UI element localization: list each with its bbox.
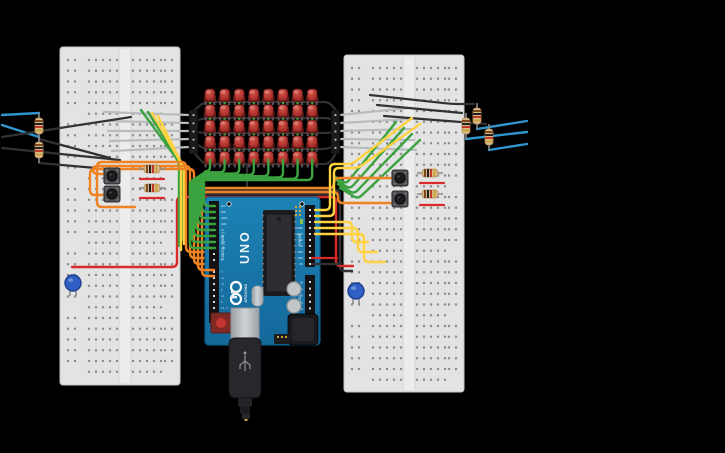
hole: [430, 250, 432, 252]
wire-under-25[interactable]: [340, 139, 414, 140]
hole: [139, 123, 141, 125]
hole: [132, 59, 134, 61]
chip-pin: [262, 275, 265, 277]
hole: [423, 88, 425, 90]
hole: [132, 231, 134, 233]
header-pin: [193, 122, 195, 124]
hole: [146, 70, 148, 72]
hole: [139, 285, 141, 287]
hole: [132, 209, 134, 211]
hole: [116, 252, 118, 254]
power-pin[interactable]: [309, 215, 311, 217]
hole: [351, 142, 353, 144]
hole: [109, 220, 111, 222]
matrix-header-right[interactable]: [331, 110, 340, 154]
hole: [146, 80, 148, 82]
hole: [146, 252, 148, 254]
reset-button[interactable]: [211, 313, 231, 333]
hole: [146, 317, 148, 319]
hole: [448, 346, 450, 348]
hole: [74, 188, 76, 190]
hole: [146, 295, 148, 297]
hole: [146, 102, 148, 104]
hole: [358, 110, 360, 112]
hole: [95, 349, 97, 351]
hole: [160, 91, 162, 93]
hole: [437, 368, 439, 370]
hole: [444, 228, 446, 230]
hole: [437, 99, 439, 101]
hole: [455, 303, 457, 305]
hole: [358, 217, 360, 219]
button-corner-pin: [105, 169, 107, 171]
hole: [351, 217, 353, 219]
hole: [379, 379, 381, 381]
hole: [139, 220, 141, 222]
hole: [160, 306, 162, 308]
hole: [416, 260, 418, 262]
hole: [116, 285, 118, 287]
hole: [437, 228, 439, 230]
hole: [164, 295, 166, 297]
led-highlight: [221, 137, 226, 141]
digital-pin[interactable]: [213, 277, 215, 279]
hole: [437, 336, 439, 338]
hole: [448, 67, 450, 69]
led-highlight: [250, 106, 255, 110]
hole: [139, 80, 141, 82]
hole: [109, 338, 111, 340]
hole: [116, 156, 118, 158]
led-highlight: [206, 153, 211, 157]
hole: [95, 252, 97, 254]
hole: [423, 121, 425, 123]
hole: [160, 70, 162, 72]
hole: [400, 303, 402, 305]
hole: [160, 263, 162, 265]
hole: [416, 314, 418, 316]
hole: [171, 317, 173, 319]
button-corner-pin: [105, 187, 107, 189]
hole: [88, 295, 90, 297]
led-bulb: [65, 275, 81, 291]
hole: [88, 145, 90, 147]
hole: [448, 271, 450, 273]
hole: [102, 263, 104, 265]
hole: [430, 78, 432, 80]
hole: [386, 153, 388, 155]
hole: [102, 123, 104, 125]
hole: [437, 78, 439, 80]
resistor-band: [462, 129, 470, 131]
hole: [386, 314, 388, 316]
resistor-band: [485, 137, 493, 139]
hole: [160, 317, 162, 319]
led-highlight: [279, 121, 284, 125]
hole: [448, 260, 450, 262]
hole: [423, 164, 425, 166]
hole: [393, 239, 395, 241]
button-corner-pin: [393, 203, 395, 205]
hole: [351, 78, 353, 80]
hole: [358, 325, 360, 327]
hole: [95, 338, 97, 340]
hole: [416, 121, 418, 123]
digital-pin[interactable]: [213, 307, 215, 309]
hole: [430, 303, 432, 305]
led-highlight: [206, 106, 211, 110]
hole: [102, 252, 104, 254]
led-highlight: [264, 106, 269, 110]
hole: [102, 209, 104, 211]
hole: [164, 360, 166, 362]
hole: [379, 196, 381, 198]
hole: [109, 209, 111, 211]
resistor-band: [155, 165, 157, 173]
hole: [386, 260, 388, 262]
icsp-pin[interactable]: [299, 206, 301, 208]
header-pin: [335, 147, 337, 149]
hole: [372, 357, 374, 359]
hole: [132, 285, 134, 287]
hole: [386, 325, 388, 327]
pushbutton-3[interactable]: [391, 191, 408, 207]
hole: [372, 131, 374, 133]
hole: [95, 317, 97, 319]
hole: [67, 360, 69, 362]
button-corner-pin: [404, 192, 406, 194]
hole: [164, 349, 166, 351]
hole: [393, 88, 395, 90]
analog-pin[interactable]: [309, 301, 311, 303]
led-highlight: [221, 106, 226, 110]
hole: [393, 228, 395, 230]
hole: [102, 371, 104, 373]
hole: [109, 145, 111, 147]
digital-pin[interactable]: [213, 271, 215, 273]
hole: [423, 142, 425, 144]
hole: [430, 217, 432, 219]
hole: [444, 239, 446, 241]
hole: [171, 220, 173, 222]
hole: [416, 293, 418, 295]
hole: [358, 368, 360, 370]
hole: [171, 328, 173, 330]
hole: [416, 110, 418, 112]
hole: [386, 250, 388, 252]
usb-connector-end: [242, 414, 250, 419]
power-pin[interactable]: [309, 263, 311, 265]
hole: [430, 346, 432, 348]
hole: [88, 102, 90, 104]
hole: [116, 220, 118, 222]
breadboard-left[interactable]: [60, 47, 180, 385]
hole: [88, 70, 90, 72]
arduino-uno[interactable]: SCLSDAAREFGND1312~11~10~987~6~54~32TX→1R…: [205, 197, 320, 345]
hole: [146, 349, 148, 351]
icsp-pin[interactable]: [295, 214, 297, 216]
hole: [430, 185, 432, 187]
hole: [74, 220, 76, 222]
matrix-header-left[interactable]: [189, 110, 198, 154]
hole: [379, 303, 381, 305]
hole: [88, 231, 90, 233]
hole: [393, 217, 395, 219]
digital-pin[interactable]: [213, 295, 215, 297]
hole: [88, 274, 90, 276]
hole: [160, 360, 162, 362]
led-highlight: [250, 153, 255, 157]
power-pin[interactable]: [309, 251, 311, 253]
hole: [444, 142, 446, 144]
hole: [444, 196, 446, 198]
hole: [444, 164, 446, 166]
led-highlight: [68, 278, 73, 282]
hole: [153, 328, 155, 330]
hole: [430, 282, 432, 284]
hole: [95, 242, 97, 244]
pushbutton-1[interactable]: [103, 186, 120, 202]
hole: [372, 88, 374, 90]
hole: [95, 295, 97, 297]
power-pin[interactable]: [309, 209, 311, 211]
hole: [400, 282, 402, 284]
hole: [372, 336, 374, 338]
pushbutton-0[interactable]: [103, 168, 120, 184]
hole: [455, 260, 457, 262]
hole: [358, 207, 360, 209]
hole: [437, 271, 439, 273]
hole: [171, 123, 173, 125]
hole: [102, 145, 104, 147]
hole: [164, 59, 166, 61]
digital-pin[interactable]: [213, 283, 215, 285]
hole: [400, 357, 402, 359]
hole: [351, 99, 353, 101]
hole: [102, 306, 104, 308]
hole: [95, 360, 97, 362]
icsp-pin[interactable]: [299, 214, 301, 216]
chip-pin: [294, 239, 297, 241]
hole: [102, 231, 104, 233]
hole: [455, 293, 457, 295]
hole: [379, 368, 381, 370]
hole: [430, 314, 432, 316]
hole: [416, 239, 418, 241]
hole: [171, 360, 173, 362]
hole: [393, 346, 395, 348]
hole: [95, 263, 97, 265]
led-highlight: [206, 90, 211, 94]
hole: [109, 252, 111, 254]
hole: [139, 209, 141, 211]
hole: [372, 142, 374, 144]
analog-pin[interactable]: [309, 294, 311, 296]
hole: [448, 99, 450, 101]
button-cap: [395, 173, 405, 183]
icsp-pin[interactable]: [299, 210, 301, 212]
hole: [146, 371, 148, 373]
hole: [379, 207, 381, 209]
hole: [393, 99, 395, 101]
hole: [379, 185, 381, 187]
analog-pin[interactable]: [309, 288, 311, 290]
hole: [358, 336, 360, 338]
hole: [160, 338, 162, 340]
led-highlight: [279, 153, 284, 157]
hole: [448, 282, 450, 284]
hole: [153, 145, 155, 147]
hole: [171, 295, 173, 297]
hole: [153, 285, 155, 287]
hole: [444, 217, 446, 219]
hole: [430, 293, 432, 295]
hole: [74, 199, 76, 201]
hole: [153, 91, 155, 93]
hole: [455, 142, 457, 144]
hole: [67, 349, 69, 351]
digital-pin[interactable]: [213, 289, 215, 291]
hole: [448, 303, 450, 305]
transistor-pin: [277, 336, 279, 338]
hole: [386, 228, 388, 230]
breadboard-right[interactable]: [344, 55, 464, 392]
digital-pin[interactable]: [213, 259, 215, 261]
hole: [351, 67, 353, 69]
hole: [132, 338, 134, 340]
hole: [153, 306, 155, 308]
analog-pin[interactable]: [309, 307, 311, 309]
pushbutton-2[interactable]: [391, 170, 408, 186]
hole: [423, 250, 425, 252]
hole: [455, 131, 457, 133]
hole: [455, 174, 457, 176]
hole: [95, 102, 97, 104]
hole: [444, 368, 446, 370]
hole: [423, 346, 425, 348]
hole: [153, 80, 155, 82]
hole: [102, 80, 104, 82]
hole: [67, 59, 69, 61]
hole: [109, 242, 111, 244]
hole: [109, 134, 111, 136]
chip-pin: [294, 245, 297, 247]
hole: [171, 263, 173, 265]
hole: [171, 338, 173, 340]
hole: [88, 338, 90, 340]
hole: [437, 379, 439, 381]
led-highlight: [279, 90, 284, 94]
led-highlight: [351, 286, 356, 290]
hole: [116, 102, 118, 104]
hole: [372, 196, 374, 198]
hole: [400, 271, 402, 273]
resistor-band: [152, 184, 154, 192]
power-pin[interactable]: [309, 239, 311, 241]
hole: [171, 70, 173, 72]
hole: [139, 338, 141, 340]
hole: [164, 231, 166, 233]
resistor-band: [433, 190, 435, 198]
hole: [139, 371, 141, 373]
hole: [171, 349, 173, 351]
hole: [437, 250, 439, 252]
hole: [132, 317, 134, 319]
hole: [400, 88, 402, 90]
hole: [153, 263, 155, 265]
power-pin[interactable]: [309, 257, 311, 259]
hole: [448, 336, 450, 338]
power-pin[interactable]: [309, 233, 311, 235]
hole: [88, 306, 90, 308]
power-pin[interactable]: [309, 221, 311, 223]
digital-pin[interactable]: [213, 301, 215, 303]
hole: [102, 338, 104, 340]
hole: [109, 285, 111, 287]
button-corner-pin: [393, 192, 395, 194]
hole: [416, 228, 418, 230]
hole: [95, 91, 97, 93]
hole: [67, 338, 69, 340]
hole: [132, 371, 134, 373]
hole: [67, 188, 69, 190]
hole: [416, 379, 418, 381]
led-highlight: [308, 153, 313, 157]
analog-pin[interactable]: [309, 281, 311, 283]
hole: [386, 196, 388, 198]
arduino-brand-label: ARDUINO: [244, 283, 248, 302]
mounting-hole: [227, 202, 231, 206]
hole: [146, 156, 148, 158]
hole: [379, 357, 381, 359]
chip-pin: [294, 221, 297, 223]
hole: [379, 217, 381, 219]
hole: [455, 67, 457, 69]
hole: [358, 131, 360, 133]
icsp-pin[interactable]: [295, 210, 297, 212]
power-pin[interactable]: [309, 245, 311, 247]
hole: [400, 228, 402, 230]
hole: [160, 102, 162, 104]
hole: [116, 70, 118, 72]
resistor-band: [149, 184, 151, 192]
hole: [102, 360, 104, 362]
hole: [379, 239, 381, 241]
hole: [116, 242, 118, 244]
resistor-band: [473, 110, 481, 112]
hole: [164, 328, 166, 330]
icsp-pin[interactable]: [295, 206, 297, 208]
hole: [102, 70, 104, 72]
led-highlight: [264, 137, 269, 141]
transistor-pin: [281, 336, 283, 338]
led-highlight: [206, 137, 211, 141]
resistor-band: [462, 123, 470, 125]
resistor-band: [427, 190, 429, 198]
hole: [444, 325, 446, 327]
button-corner-pin: [116, 169, 118, 171]
hole: [386, 185, 388, 187]
digital-pin[interactable]: [213, 253, 215, 255]
hole: [386, 239, 388, 241]
hole: [132, 220, 134, 222]
power-pin[interactable]: [309, 227, 311, 229]
hole: [88, 328, 90, 330]
led-highlight: [308, 137, 313, 141]
hole: [132, 328, 134, 330]
hole: [164, 263, 166, 265]
hole: [437, 260, 439, 262]
